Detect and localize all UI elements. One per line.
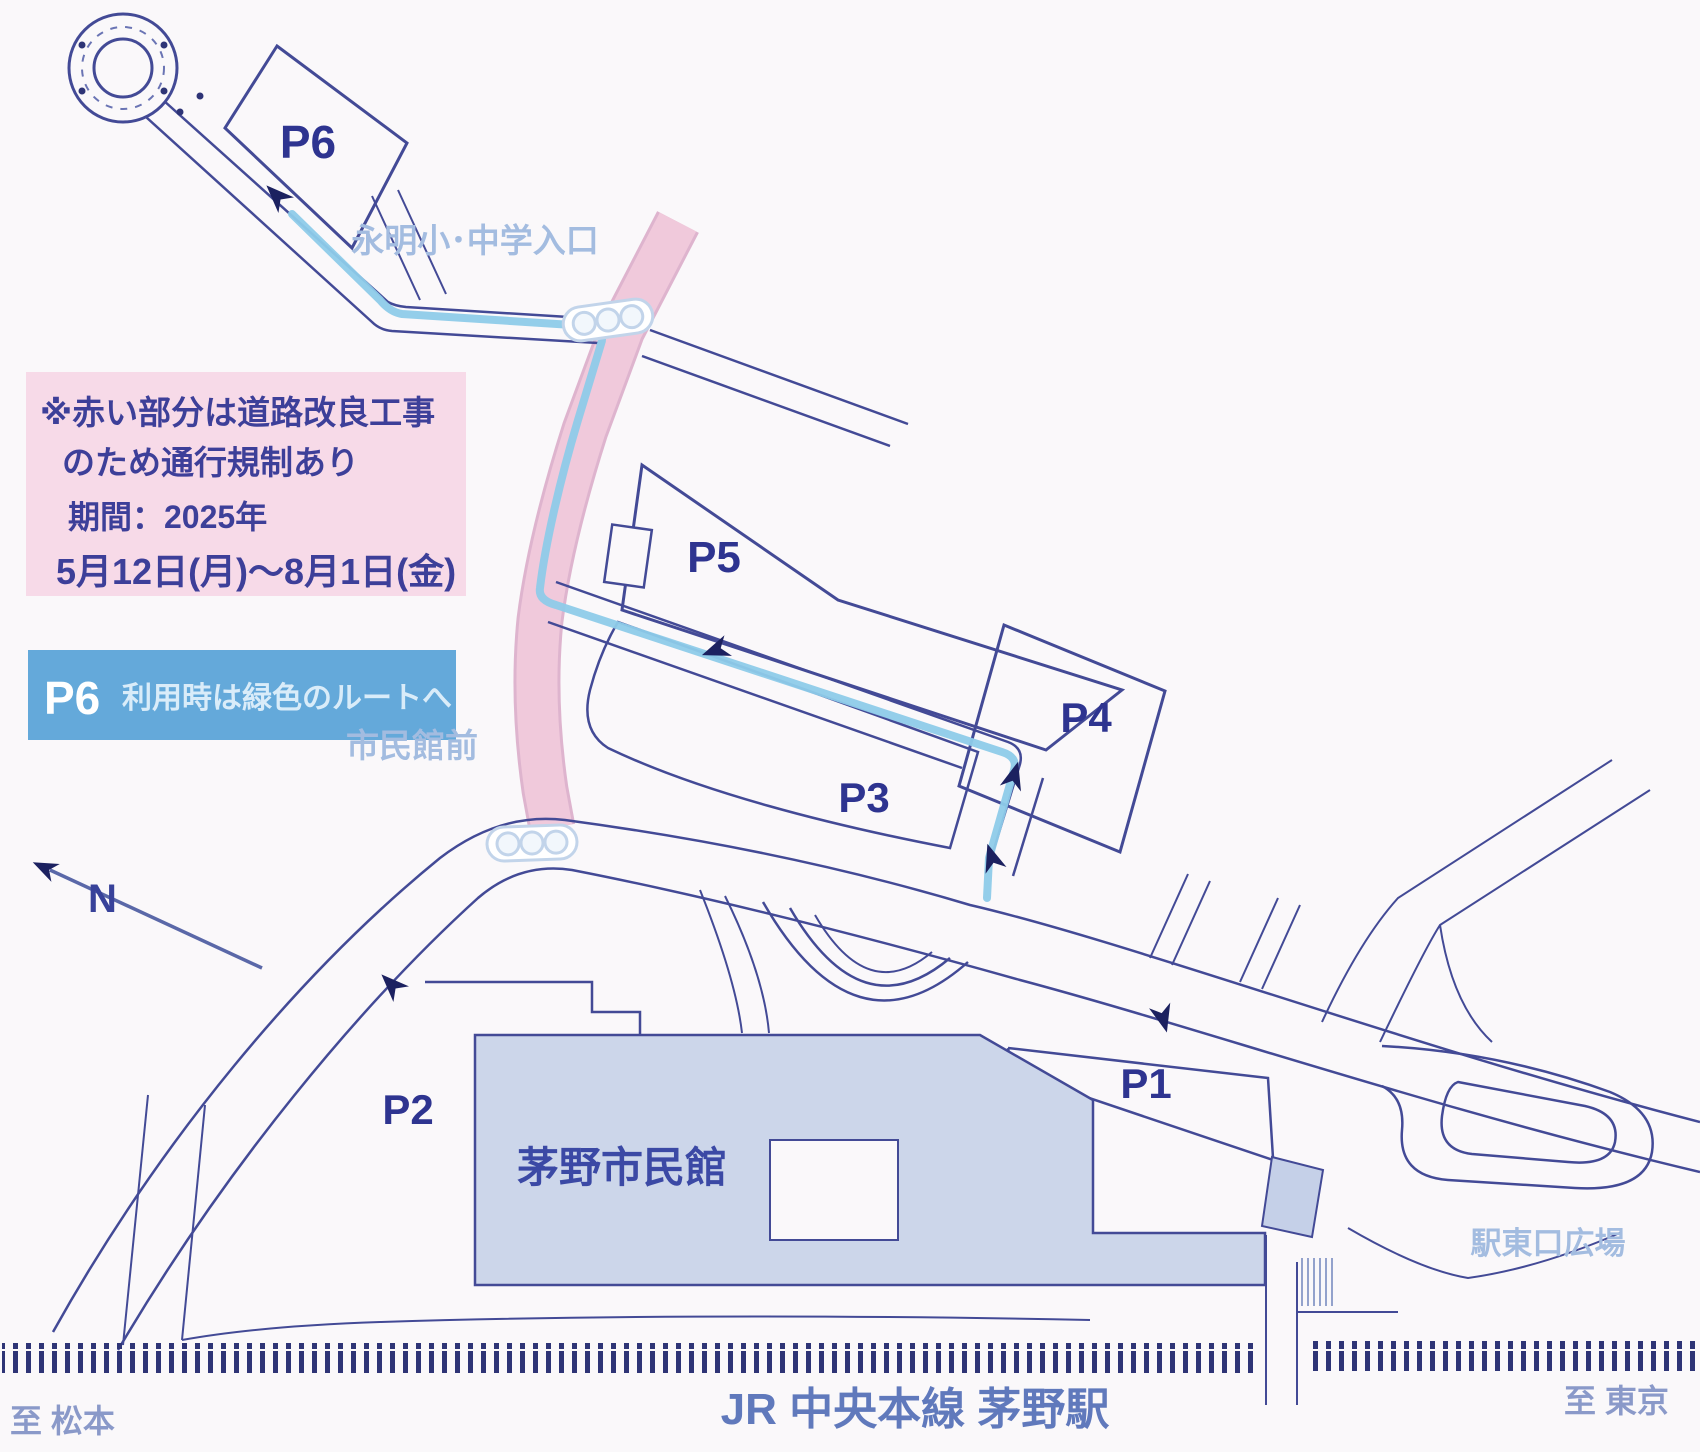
- to-matsumoto-label: 至 松本: [10, 1403, 115, 1439]
- to-tokyo-label: 至 東京: [1564, 1383, 1669, 1419]
- notice-line-4: 5月12日(月)～8月1日(金): [56, 551, 456, 592]
- station-plaza-label: 駅東口広場: [1471, 1226, 1626, 1261]
- roundabout: [69, 14, 204, 122]
- compass: N: [29, 853, 262, 968]
- station-stairs: [1302, 1258, 1332, 1306]
- railway-line: [2, 1341, 1698, 1373]
- p4-label: P4: [1060, 694, 1112, 741]
- intersection-north-label: 永明小･中学入口: [351, 222, 599, 259]
- p6-label: P6: [280, 116, 336, 168]
- notice-line-3: 期間：2025年: [68, 499, 267, 535]
- notice-line-2: のため通行規制あり: [62, 444, 359, 481]
- parking-access-map: N ※赤い部分は道路改良工事 のため通行規制あり 期間：2025年 5月12日(…: [0, 0, 1700, 1452]
- compass-label: N: [88, 877, 117, 921]
- compass-arrow-icon: [29, 853, 60, 882]
- p1-label: P1: [1120, 1060, 1171, 1107]
- notice-line-1: ※赤い部分は道路改良工事: [40, 394, 435, 431]
- hall-label: 茅野市民館: [517, 1144, 727, 1191]
- p2-label: P2: [382, 1086, 433, 1133]
- p5-label: P5: [687, 533, 741, 582]
- signal-hall-icon: [486, 824, 577, 861]
- railway-label: JR 中央本線 茅野駅: [721, 1385, 1110, 1434]
- p3-label: P3: [838, 774, 889, 821]
- banner-text: 利用時は緑色のルートへ: [122, 681, 452, 715]
- intersection-hall-label: 市民館前: [346, 727, 478, 764]
- p5-notch: [604, 524, 652, 587]
- route-arrow-roundabout: [259, 178, 294, 213]
- station-entrance-block: [1262, 1157, 1323, 1237]
- map-canvas: N ※赤い部分は道路改良工事 のため通行規制あり 期間：2025年 5月12日(…: [0, 0, 1700, 1452]
- construction-notice: ※赤い部分は道路改良工事 のため通行規制あり 期間：2025年 5月12日(月)…: [26, 372, 466, 596]
- banner-p6-label: P6: [44, 672, 100, 724]
